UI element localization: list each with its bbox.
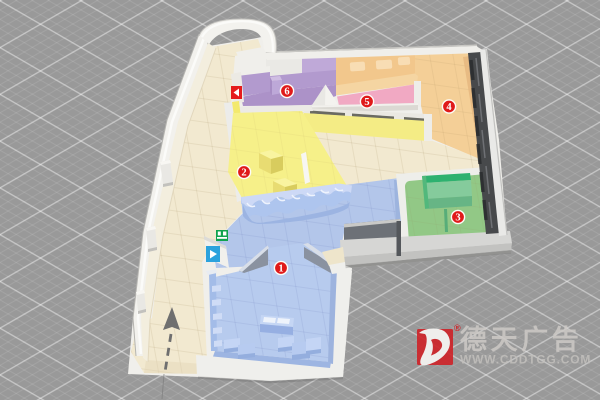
svg-text:WWW.CDDTGG.COM: WWW.CDDTGG.COM — [460, 353, 591, 367]
svg-text:3: 3 — [455, 213, 460, 224]
svg-text:1: 1 — [278, 264, 283, 275]
svg-text:4: 4 — [446, 102, 452, 113]
svg-text:6: 6 — [284, 87, 289, 98]
svg-text:德天广告: 德天广告 — [460, 325, 582, 355]
svg-text:5: 5 — [364, 97, 369, 108]
svg-text:2: 2 — [241, 168, 246, 179]
